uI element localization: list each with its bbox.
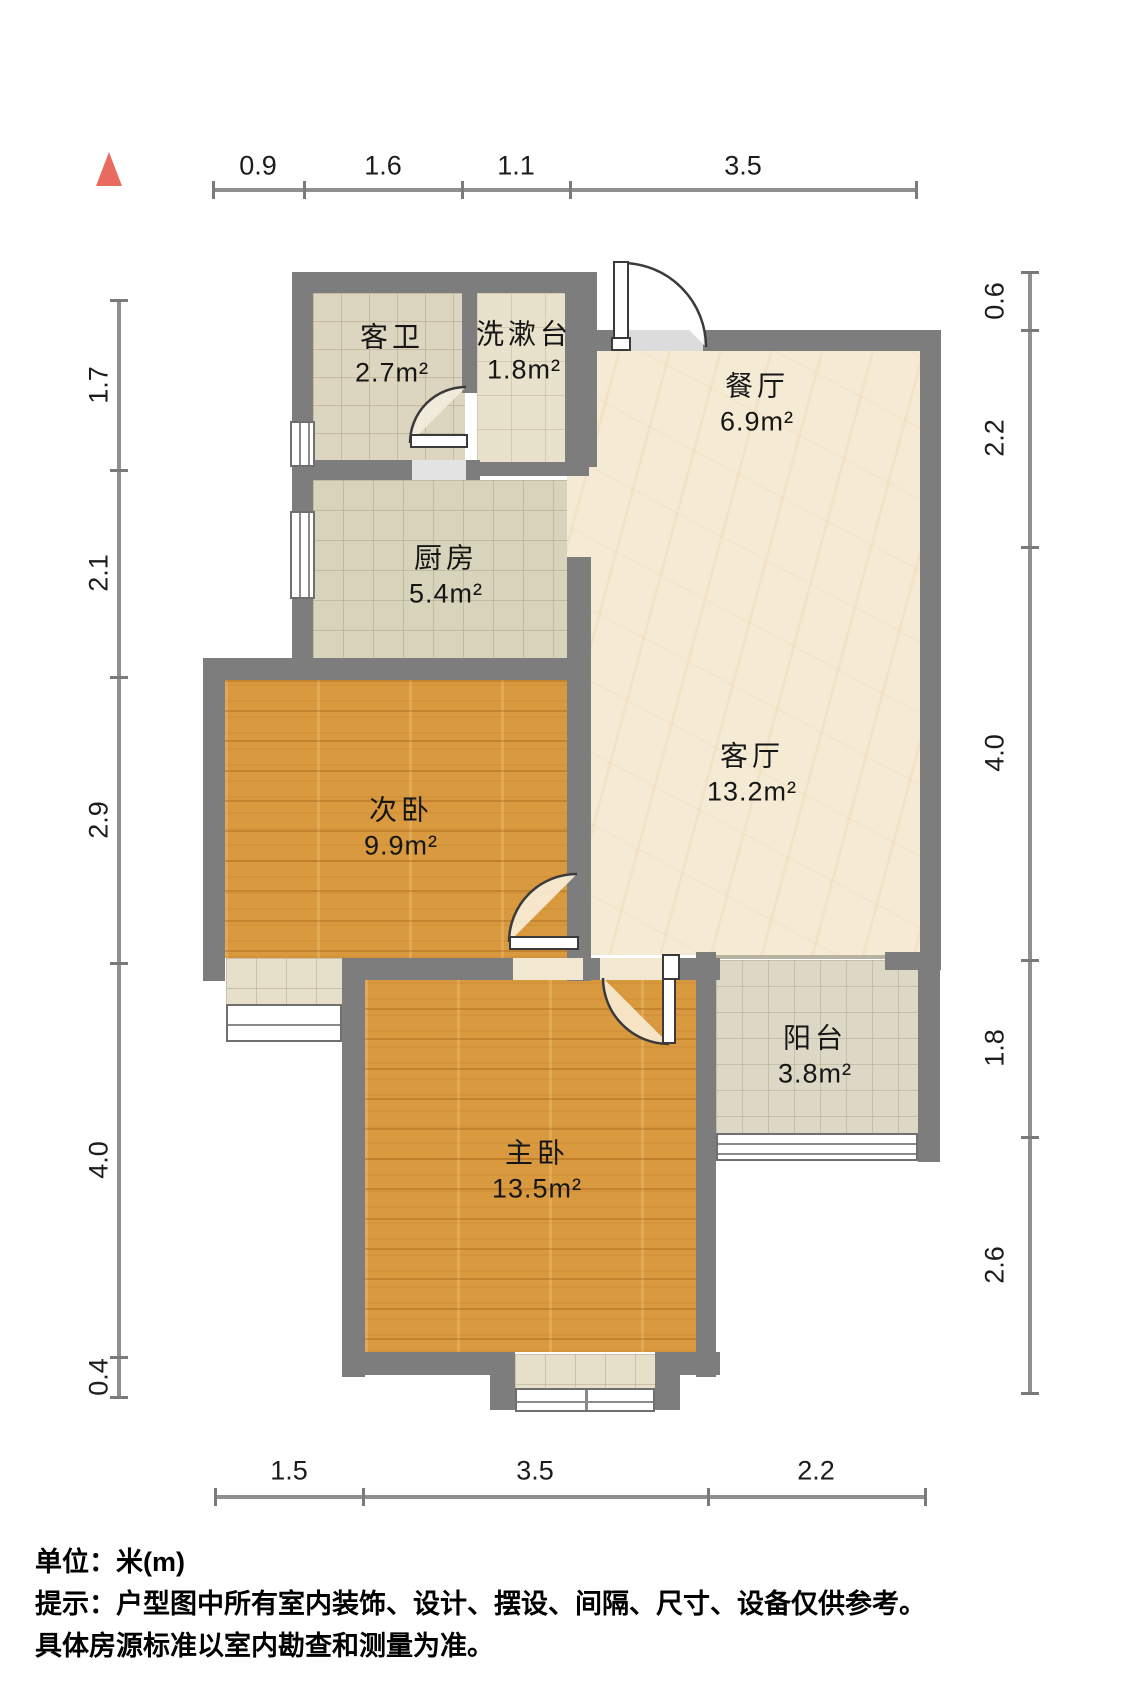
- dim-label-right: 0.6: [980, 282, 1011, 320]
- dim-tick: [110, 962, 128, 965]
- room-label-kitchen: 厨房5.4m²: [409, 540, 483, 611]
- dim-label-top: 1.1: [497, 151, 535, 182]
- room-name: 厨房: [409, 540, 483, 576]
- entry-door-leaf: [613, 261, 629, 349]
- room-label-balcony: 阳台3.8m²: [778, 1020, 852, 1091]
- dim-tick: [915, 181, 918, 199]
- dim-tick: [1021, 329, 1039, 332]
- dim-label-left: 4.0: [84, 1141, 115, 1179]
- dim-label-top: 0.9: [239, 151, 277, 182]
- dim-line-left: [117, 300, 121, 1397]
- dim-label-left: 2.9: [84, 801, 115, 839]
- room-label-second-bedroom: 次卧9.9m²: [364, 792, 438, 863]
- room-name: 客厅: [707, 738, 797, 774]
- room-name: 洗漱台: [476, 316, 572, 352]
- disclaimer-line-1: 提示：户型图中所有室内装饰、设计、摆设、间隔、尺寸、设备仅供参考。: [35, 1582, 926, 1621]
- floor-plan: 单位：米(m) 提示：户型图中所有室内装饰、设计、摆设、间隔、尺寸、设备仅供参考…: [0, 0, 1144, 1688]
- dim-tick: [569, 181, 572, 199]
- room-label-master-bedroom: 主卧13.5m²: [492, 1135, 582, 1206]
- door-swing-layer: [0, 0, 1144, 1688]
- dim-label-left: 2.1: [84, 554, 115, 592]
- dim-label-right: 2.6: [980, 1246, 1011, 1284]
- dim-label-left: 1.7: [84, 366, 115, 404]
- room-label-living: 客厅13.2m²: [707, 738, 797, 809]
- room-label-washstand: 洗漱台1.8m²: [476, 316, 572, 387]
- master-door-swing-arc: [603, 978, 669, 1044]
- room-area: 6.9m²: [720, 405, 794, 440]
- dim-line-right: [1028, 272, 1032, 1393]
- dim-label-right: 1.8: [980, 1029, 1011, 1067]
- dim-tick: [362, 1488, 365, 1506]
- room-area: 5.4m²: [409, 577, 483, 612]
- second-bedroom-door-leaf: [509, 936, 579, 950]
- unit-note: 单位：米(m): [35, 1540, 185, 1579]
- entry-door-swing-arc: [622, 263, 706, 347]
- dim-tick: [110, 299, 128, 302]
- room-area: 2.7m²: [355, 356, 429, 391]
- dim-tick: [707, 1488, 710, 1506]
- dim-line-bottom: [215, 1495, 925, 1499]
- room-area: 13.5m²: [492, 1172, 582, 1207]
- room-name: 阳台: [778, 1020, 852, 1056]
- room-name: 客卫: [355, 319, 429, 355]
- dim-tick: [461, 181, 464, 199]
- room-label-guest-bath: 客卫2.7m²: [355, 319, 429, 390]
- room-name: 主卧: [492, 1135, 582, 1171]
- dim-tick: [303, 181, 306, 199]
- dim-tick: [212, 181, 215, 199]
- dim-label-bottom: 3.5: [516, 1456, 554, 1487]
- dim-label-bottom: 1.5: [270, 1456, 308, 1487]
- dim-tick: [110, 1396, 128, 1399]
- dim-tick: [110, 469, 128, 472]
- room-name: 次卧: [364, 792, 438, 828]
- room-area: 3.8m²: [778, 1057, 852, 1092]
- second-bedroom-door-swing-arc: [509, 874, 577, 942]
- entry-door-frame: [611, 337, 631, 351]
- dim-line-top: [213, 188, 916, 192]
- disclaimer-line-2: 具体房源标准以室内勘查和测量为准。: [35, 1624, 494, 1663]
- room-label-dining: 餐厅6.9m²: [720, 368, 794, 439]
- dim-tick: [924, 1488, 927, 1506]
- dim-tick: [214, 1488, 217, 1506]
- dim-tick: [1021, 959, 1039, 962]
- dim-label-top: 3.5: [724, 151, 762, 182]
- north-arrow-icon: [96, 152, 122, 186]
- guest-bath-door-leaf: [410, 434, 468, 448]
- dim-tick: [1021, 271, 1039, 274]
- master-door-frame: [662, 954, 680, 980]
- room-area: 1.8m²: [476, 353, 572, 388]
- dim-label-left: 0.4: [84, 1358, 115, 1396]
- room-area: 13.2m²: [707, 775, 797, 810]
- room-name: 餐厅: [720, 368, 794, 404]
- dim-tick: [1021, 1392, 1039, 1395]
- dim-tick: [110, 676, 128, 679]
- dim-label-bottom: 2.2: [797, 1456, 835, 1487]
- room-area: 9.9m²: [364, 829, 438, 864]
- dim-label-right: 4.0: [980, 734, 1011, 772]
- dim-tick: [1021, 546, 1039, 549]
- dim-label-right: 2.2: [980, 419, 1011, 457]
- dim-tick: [1021, 1136, 1039, 1139]
- master-door-leaf: [662, 978, 676, 1044]
- dim-label-top: 1.6: [364, 151, 402, 182]
